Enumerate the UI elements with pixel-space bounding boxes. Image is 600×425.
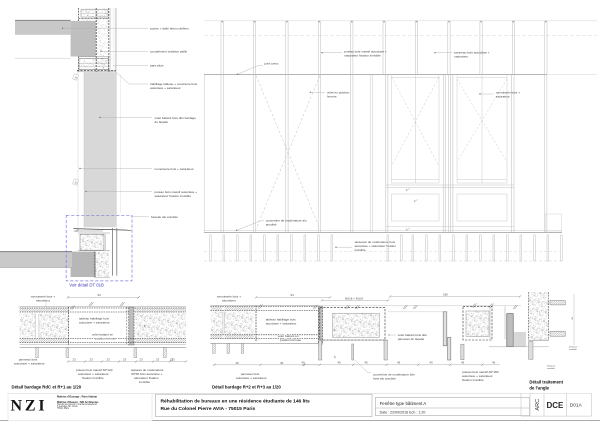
svg-text:invisible: invisible [139, 380, 150, 384]
svg-text:variable: variable [547, 367, 555, 370]
svg-text:Date : 22/09/2016 Ech: Date : 22/09/2016 Ech : 1:20 [380, 411, 426, 415]
svg-text:autoclave + saturateur: autoclave + saturateur [150, 86, 181, 90]
svg-text:fixation invisible: fixation invisible [82, 376, 104, 380]
svg-text:position fermée: position fermée [280, 338, 301, 342]
svg-text:23: 23 [140, 357, 144, 361]
svg-text:poutre + dalle béton ciellées: poutre + dalle béton ciellées [150, 26, 189, 30]
svg-text:BA18 + 45LM: BA18 + 45LM [345, 297, 363, 301]
svg-text:45: 45 [430, 361, 434, 365]
svg-text:distance: distance [547, 364, 556, 367]
svg-text:Voir détail DT 01B: Voir détail DT 01B [69, 282, 104, 287]
svg-text:DCE: DCE [547, 401, 565, 410]
svg-text:45: 45 [280, 361, 284, 365]
svg-text:45: 45 [492, 361, 496, 365]
svg-text:94: 94 [98, 293, 102, 297]
svg-text:23: 23 [156, 357, 160, 361]
svg-text:invisible: invisible [355, 248, 366, 252]
svg-text:saturateur: saturateur [454, 54, 468, 58]
svg-text:de l'angle: de l'angle [529, 385, 549, 390]
svg-text:saturateur fixation invisible: saturateur fixation invisible [344, 53, 381, 57]
svg-text:complément isolation paille: complément isolation paille [150, 50, 187, 54]
svg-text:23: 23 [90, 357, 94, 361]
svg-text:45: 45 [461, 361, 465, 365]
svg-text:panneau de façade: panneau de façade [398, 337, 425, 341]
svg-text:autoclave + saturateur: autoclave + saturateur [236, 376, 267, 380]
svg-text:fermée: fermée [327, 94, 337, 98]
svg-text:45: 45 [397, 361, 401, 365]
svg-text:menuiserie bois + saturateur: menuiserie bois + saturateur [155, 167, 194, 171]
svg-text:saturateur fixation invisible: saturateur fixation invisible [155, 194, 192, 198]
svg-text:distance: distance [569, 345, 578, 348]
svg-text:saturateur: saturateur [222, 299, 236, 303]
svg-text:23: 23 [73, 357, 77, 361]
svg-text:45: 45 [365, 361, 369, 365]
svg-text:ARC: ARC [535, 399, 541, 411]
svg-text:Maîtrise d'Ouvrage : Paris Hab: Maîtrise d'Ouvrage : Paris Habitat [57, 396, 97, 399]
svg-text:Détail bardage RdC et R+1 au 1: Détail bardage RdC et R+1 au 1/20 [12, 384, 82, 389]
svg-text:pare pluie: pare pluie [150, 64, 164, 68]
svg-text:D01A: D01A [570, 402, 583, 408]
svg-text:NZI: NZI [11, 398, 48, 415]
svg-text:variable: variable [569, 348, 577, 351]
svg-text:saturateur: saturateur [36, 299, 50, 303]
svg-text:Détail bardage R+2 et R+3 au 1: Détail bardage R+2 et R+3 au 1/20 [212, 384, 281, 389]
svg-text:Réhabilitation de bureaux en u: Réhabilitation de bureaux en une résiden… [161, 398, 310, 404]
svg-text:45: 45 [302, 361, 306, 365]
svg-text:saturateur: saturateur [496, 94, 510, 98]
svg-text:23: 23 [107, 357, 111, 361]
svg-text:186: 186 [443, 292, 448, 296]
svg-text:de façade: de façade [155, 120, 169, 124]
svg-text:94: 94 [291, 293, 295, 297]
svg-text:bavette alu anodisé: bavette alu anodisé [151, 215, 178, 219]
svg-text:45: 45 [236, 361, 240, 365]
svg-text:fixation invisible: fixation invisible [462, 378, 484, 382]
svg-text:Fenêtre type bâtiment A: Fenêtre type bâtiment A [380, 401, 427, 406]
svg-text:23: 23 [170, 357, 174, 361]
svg-text:autoclave + saturateur: autoclave + saturateur [14, 361, 45, 365]
svg-text:forte alu anodisé: forte alu anodisé [373, 376, 396, 380]
svg-text:23: 23 [123, 357, 127, 361]
svg-text:Détail traitement: Détail traitement [529, 379, 563, 384]
svg-text:Rue du Colonel Pierre AVIA -: Rue du Colonel Pierre AVIA - 75015 Paris [161, 406, 256, 412]
svg-text:joint creux: joint creux [264, 61, 280, 65]
svg-text:autoclave + saturateur: autoclave + saturateur [79, 321, 110, 325]
svg-text:45: 45 [338, 361, 342, 365]
svg-text:autoclave + saturateur: autoclave + saturateur [266, 322, 297, 326]
svg-text:anodisé: anodisé [266, 223, 277, 227]
svg-text:75011 Paris: 75011 Paris [57, 407, 70, 410]
svg-text:position fermée: position fermée [95, 337, 116, 341]
